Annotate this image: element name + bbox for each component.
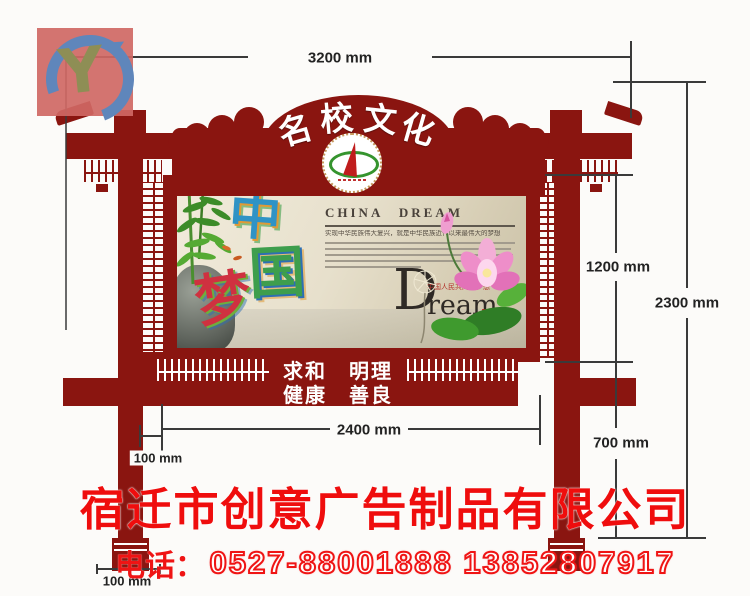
dim-1200-line: [615, 175, 617, 253]
dim-100-line: [139, 435, 163, 437]
school-badge-icon: [322, 133, 382, 193]
company-name: 宿迁市创意广告制品有限公司: [60, 486, 710, 533]
calligraphy-char-zhong: 中: [227, 189, 283, 245]
dim-1200-label: 1200 mm: [582, 259, 654, 276]
ground-tick: [598, 537, 706, 539]
dim-3200-label: 3200 mm: [304, 50, 376, 67]
dim-2400-label: 2400 mm: [333, 422, 405, 439]
right-post: [554, 115, 580, 541]
right-side-lattice: [539, 182, 555, 358]
dim-1200-top-tick: [545, 174, 633, 176]
right-eave: [604, 101, 644, 126]
badge-motto-dashes: [338, 179, 366, 181]
left-post: [118, 115, 143, 541]
phone-label: 电话：: [115, 550, 205, 583]
dim-100-label: 100 mm: [130, 451, 186, 466]
dim-700-label: 700 mm: [589, 435, 653, 452]
watermark-letter: Y: [55, 32, 107, 109]
lower-beam-left-stub: [63, 378, 120, 406]
dim-2300-top-tick: [613, 81, 706, 83]
product-design-canvas: 中 国 梦 CHINA DREAM 实现中华民族伟大复兴，就是中华民族近代以来最…: [0, 0, 750, 596]
poster-artwork: 中 国 梦 CHINA DREAM 实现中华民族伟大复兴，就是中华民族近代以来最…: [177, 189, 526, 348]
calligraphy-char-guo: 国: [248, 244, 307, 303]
dim-2400-line: [161, 428, 330, 430]
dim-2300-label: 2300 mm: [651, 295, 723, 312]
extension-line: [630, 41, 632, 118]
left-bracket-step: [96, 184, 108, 192]
phone-numbers: 0527-88001888 13852807917: [209, 545, 674, 580]
slogan-line2: 健康 善良: [238, 379, 438, 408]
dim-700-line: [615, 362, 617, 428]
phone-row: 电话： 0527-88001888 13852807917: [70, 541, 720, 585]
calligraphy-char-meng: 梦: [191, 267, 255, 331]
dim-1200-bottom-tick: [545, 361, 633, 363]
dim-1200-line: [615, 281, 617, 362]
lower-beam-right-stub: [578, 378, 636, 406]
dim-3200-line: [432, 56, 632, 58]
arch-crown: 名 校 文 化: [172, 95, 545, 196]
arch-title-char: 文: [362, 91, 400, 142]
right-bracket-step: [590, 184, 602, 192]
dim-2400-line: [408, 428, 540, 430]
left-side-lattice: [143, 182, 163, 358]
dim-2300-line: [686, 82, 688, 288]
watermark-logo: Y: [37, 28, 133, 116]
lotus-art: [417, 209, 526, 348]
extension-line: [539, 395, 541, 445]
